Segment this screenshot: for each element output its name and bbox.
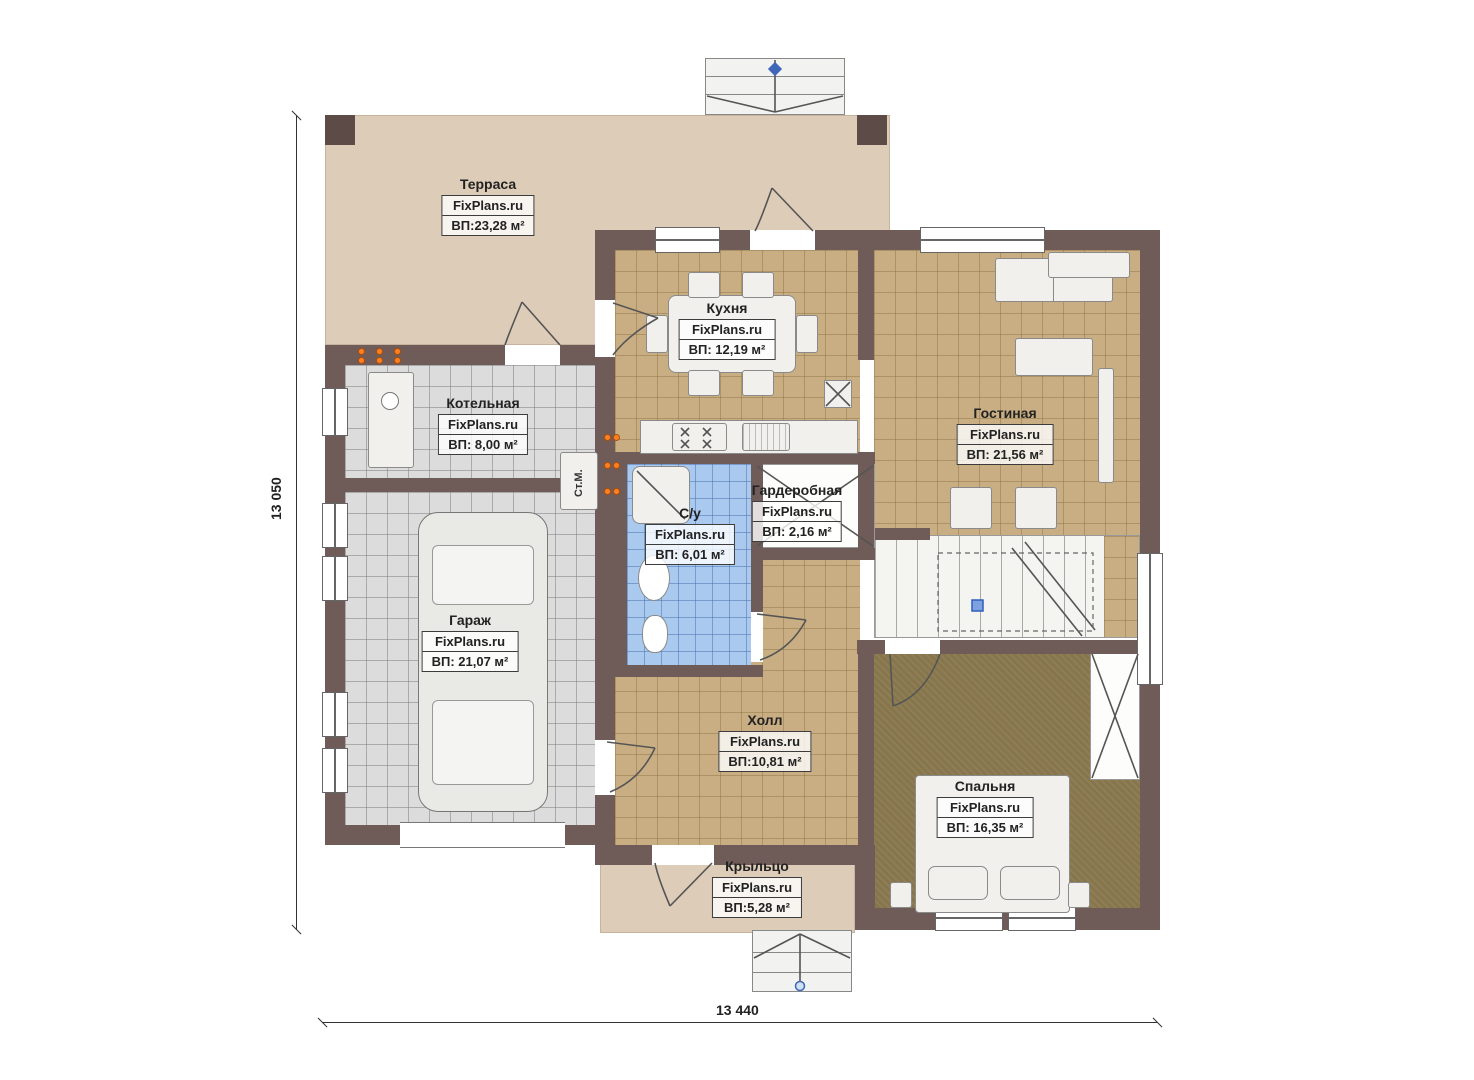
brand: FixPlans.ru bbox=[680, 320, 775, 340]
right-window bbox=[1137, 553, 1163, 685]
stove bbox=[672, 423, 727, 451]
room-area: ВП: 8,00 м² bbox=[439, 435, 527, 454]
porch-step-line bbox=[752, 972, 852, 973]
pillow bbox=[928, 866, 988, 900]
wall-wardrobe-bottom bbox=[755, 548, 875, 560]
terrace-steps bbox=[705, 58, 845, 115]
armchair bbox=[950, 487, 992, 529]
room-area: ВП: 2,16 м² bbox=[753, 522, 841, 541]
label-terrace: Терраса FixPlans.ru ВП:23,28 м² bbox=[441, 176, 534, 236]
room-name: Крыльцо bbox=[725, 858, 789, 874]
garage-door-opening bbox=[400, 822, 565, 848]
boiler-unit bbox=[368, 372, 414, 468]
brand: FixPlans.ru bbox=[423, 632, 518, 652]
radiator-dot bbox=[394, 348, 401, 355]
radiator-dot bbox=[604, 434, 611, 441]
bedroom-door-gap bbox=[885, 640, 940, 654]
car-rear bbox=[432, 700, 534, 785]
radiator-dot bbox=[613, 488, 620, 495]
front-door-gap bbox=[652, 845, 714, 865]
radiator-dot bbox=[604, 488, 611, 495]
label-kitchen: Кухня FixPlans.ru ВП: 12,19 м² bbox=[679, 300, 776, 360]
room-area: ВП: 21,56 м² bbox=[958, 445, 1053, 464]
room-name: Кухня bbox=[707, 300, 748, 316]
living-window bbox=[920, 227, 1045, 253]
chair bbox=[742, 370, 774, 396]
shaft-x-box bbox=[824, 380, 852, 408]
room-name: Гостиная bbox=[973, 405, 1036, 421]
room-name: С/у bbox=[679, 505, 701, 521]
porch-steps bbox=[752, 930, 852, 992]
radiator-dot bbox=[613, 434, 620, 441]
dimension-line-horizontal bbox=[322, 1022, 1157, 1023]
radiator-dot bbox=[376, 348, 383, 355]
armchair bbox=[1015, 487, 1057, 529]
label-porch: Крыльцо FixPlans.ru ВП:5,28 м² bbox=[712, 858, 802, 918]
brand: FixPlans.ru bbox=[646, 525, 734, 545]
boiler-window bbox=[322, 388, 348, 436]
brand: FixPlans.ru bbox=[753, 502, 841, 522]
wall-wardrobe-right bbox=[858, 452, 874, 560]
chair bbox=[688, 370, 720, 396]
terrace-step-line bbox=[705, 76, 845, 77]
radiator-dot bbox=[358, 348, 365, 355]
label-bathroom: С/у FixPlans.ru ВП: 6,01 м² bbox=[645, 505, 735, 565]
kitchen-terrace-door-gap bbox=[595, 300, 615, 357]
wall-boiler-top bbox=[325, 345, 610, 365]
brand: FixPlans.ru bbox=[439, 415, 527, 435]
brand: FixPlans.ru bbox=[958, 425, 1053, 445]
floor-plan: Ст.М. bbox=[0, 0, 1474, 1080]
boiler-terrace-door-gap bbox=[505, 345, 560, 365]
terrace-column bbox=[857, 115, 887, 145]
label-wardrobe: Гардеробная FixPlans.ru ВП: 2,16 м² bbox=[752, 482, 843, 542]
label-living: Гостиная FixPlans.ru ВП: 21,56 м² bbox=[957, 405, 1054, 465]
room-name: Гараж bbox=[449, 612, 491, 628]
room-name: Котельная bbox=[446, 395, 519, 411]
stair-landing bbox=[1104, 536, 1139, 637]
bathroom-door-gap bbox=[751, 612, 763, 662]
radiator-dot bbox=[376, 357, 383, 364]
room-area: ВП: 12,19 м² bbox=[680, 340, 775, 359]
kitchen-sink bbox=[742, 423, 790, 451]
room-name: Спальня bbox=[955, 778, 1015, 794]
room-area: ВП:10,81 м² bbox=[719, 752, 810, 771]
garage-window-2 bbox=[322, 556, 348, 601]
dimension-height: 13 050 bbox=[268, 477, 284, 520]
porch-step-line bbox=[752, 952, 852, 953]
room-area: ВП: 16,35 м² bbox=[938, 818, 1033, 837]
room-name: Терраса bbox=[460, 176, 516, 192]
wall-boiler-garage bbox=[345, 478, 595, 492]
room-area: ВП:23,28 м² bbox=[442, 216, 533, 235]
staircase bbox=[874, 535, 1140, 638]
nightstand bbox=[1068, 882, 1090, 908]
brand: FixPlans.ru bbox=[713, 878, 801, 898]
label-hall: Холл FixPlans.ru ВП:10,81 м² bbox=[718, 712, 811, 772]
terrace-step-line bbox=[705, 94, 845, 95]
bidet bbox=[642, 615, 668, 653]
label-bedroom: Спальня FixPlans.ru ВП: 16,35 м² bbox=[937, 778, 1034, 838]
kitchen-window bbox=[655, 227, 720, 253]
label-garage: Гараж FixPlans.ru ВП: 21,07 м² bbox=[422, 612, 519, 672]
garage-window-3 bbox=[322, 692, 348, 737]
wall-kitchen-living bbox=[858, 230, 874, 360]
chair bbox=[688, 272, 720, 298]
brand: FixPlans.ru bbox=[938, 798, 1033, 818]
wall-bath-left bbox=[615, 452, 627, 677]
wall-living-stairs bbox=[875, 528, 930, 540]
brand: FixPlans.ru bbox=[719, 732, 810, 752]
garage-window-4 bbox=[322, 748, 348, 793]
label-boiler: Котельная FixPlans.ru ВП: 8,00 м² bbox=[438, 395, 528, 455]
boiler-dial bbox=[381, 392, 399, 410]
washing-machine-label: Ст.М. bbox=[573, 459, 585, 497]
coffee-table bbox=[1015, 338, 1093, 376]
pillow bbox=[1000, 866, 1060, 900]
room-area: ВП: 21,07 м² bbox=[423, 652, 518, 671]
wall-bedroom-left bbox=[858, 640, 874, 910]
room-area: ВП: 6,01 м² bbox=[646, 545, 734, 564]
radiator-dot bbox=[358, 357, 365, 364]
terrace-door-gap bbox=[750, 230, 815, 250]
room-name: Гардеробная bbox=[752, 482, 843, 498]
brand: FixPlans.ru bbox=[442, 196, 533, 216]
room-name: Холл bbox=[747, 712, 782, 728]
chair bbox=[796, 315, 818, 353]
dimension-width: 13 440 bbox=[716, 1002, 759, 1018]
radiator-dot bbox=[613, 462, 620, 469]
sideboard bbox=[1048, 252, 1130, 278]
chair bbox=[742, 272, 774, 298]
bedroom-closet bbox=[1090, 652, 1140, 780]
chair bbox=[646, 315, 668, 353]
radiator-dot bbox=[604, 462, 611, 469]
radiator-dot bbox=[394, 357, 401, 364]
wall-bath-bottom bbox=[615, 665, 763, 677]
garage-window-1 bbox=[322, 503, 348, 548]
car-hood bbox=[432, 545, 534, 605]
nightstand bbox=[890, 882, 912, 908]
room-area: ВП:5,28 м² bbox=[713, 898, 801, 917]
hall-garage-door-gap bbox=[595, 740, 615, 795]
terrace-column bbox=[325, 115, 355, 145]
tv-panel bbox=[1098, 368, 1114, 483]
dimension-line-vertical bbox=[296, 115, 297, 930]
